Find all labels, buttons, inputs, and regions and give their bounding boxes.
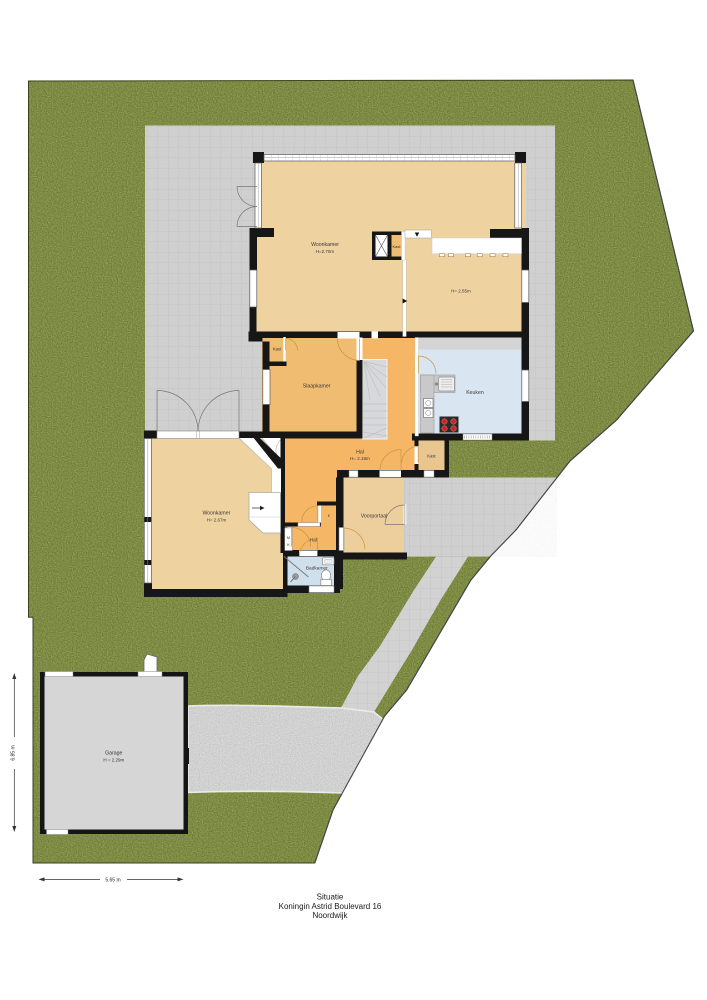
svg-text:Garage: Garage: [105, 751, 122, 757]
svg-text:Noordwijk: Noordwijk: [312, 911, 348, 920]
svg-text:Badkamer: Badkamer: [306, 566, 328, 572]
svg-text:Voorportaal: Voorportaal: [361, 514, 388, 520]
svg-text:Slaapkamer: Slaapkamer: [303, 384, 331, 390]
svg-text:H= 2.55m: H= 2.55m: [451, 289, 471, 294]
svg-text:5.65 m: 5.65 m: [105, 878, 120, 884]
svg-text:Kast: Kast: [392, 244, 401, 249]
svg-text:Kast: Kast: [273, 347, 282, 352]
svg-text:Kast: Kast: [427, 454, 436, 459]
svg-text:Situatie: Situatie: [317, 893, 344, 902]
svg-text:Koningin Astrid Boulevard 16: Koningin Astrid Boulevard 16: [279, 902, 382, 911]
svg-text:H = 2.29m: H = 2.29m: [103, 758, 124, 763]
svg-text:Keuken: Keuken: [466, 390, 484, 396]
svg-text:Woonkamer: Woonkamer: [311, 242, 339, 248]
svg-text:H= 2.18m: H= 2.18m: [350, 456, 370, 461]
svg-text:M: M: [287, 536, 290, 540]
svg-text:H= 2.67m: H= 2.67m: [207, 518, 227, 523]
svg-text:H=2.70m: H=2.70m: [316, 249, 335, 254]
svg-text:6.85 m: 6.85 m: [10, 745, 16, 760]
svg-text:Hal: Hal: [310, 538, 317, 544]
svg-text:Hal: Hal: [356, 450, 364, 456]
svg-text:Woonkamer: Woonkamer: [202, 511, 230, 517]
